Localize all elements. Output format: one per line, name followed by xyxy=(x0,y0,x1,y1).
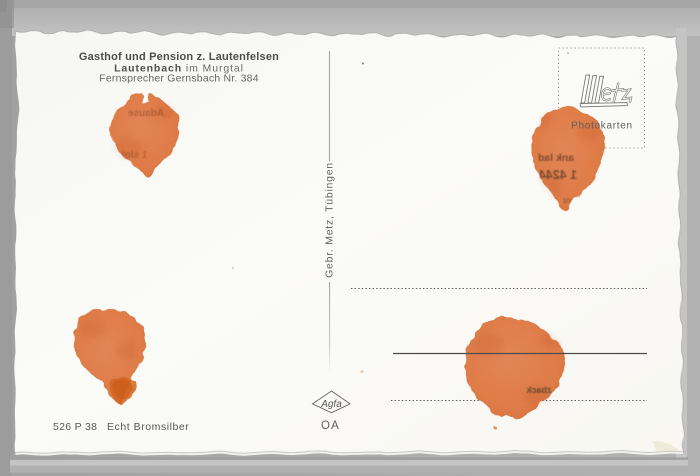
svg-text:Echt Bromsilber: Echt Bromsilber xyxy=(107,421,189,433)
svg-text:zback: zback xyxy=(525,385,551,395)
svg-text:526 P 38: 526 P 38 xyxy=(53,421,97,433)
svg-text:ru: ru xyxy=(563,196,571,205)
svg-text:OA: OA xyxy=(321,420,340,432)
svg-text:Gebr. Metz, Tübingen: Gebr. Metz, Tübingen xyxy=(324,162,336,278)
svg-text:ank lad: ank lad xyxy=(538,152,574,164)
svg-text:Adause: Adause xyxy=(128,108,165,119)
svg-text:Gasthof und Pension z. Lautenf: Gasthof und Pension z. Lautenfelsen xyxy=(79,51,279,63)
svg-text:Agfa: Agfa xyxy=(320,399,342,410)
svg-text:Fernsprecher Gernsbach Nr. 384: Fernsprecher Gernsbach Nr. 384 xyxy=(99,73,259,85)
svg-text:Photokarten: Photokarten xyxy=(571,121,633,132)
svg-text:1 4244: 1 4244 xyxy=(539,168,577,182)
